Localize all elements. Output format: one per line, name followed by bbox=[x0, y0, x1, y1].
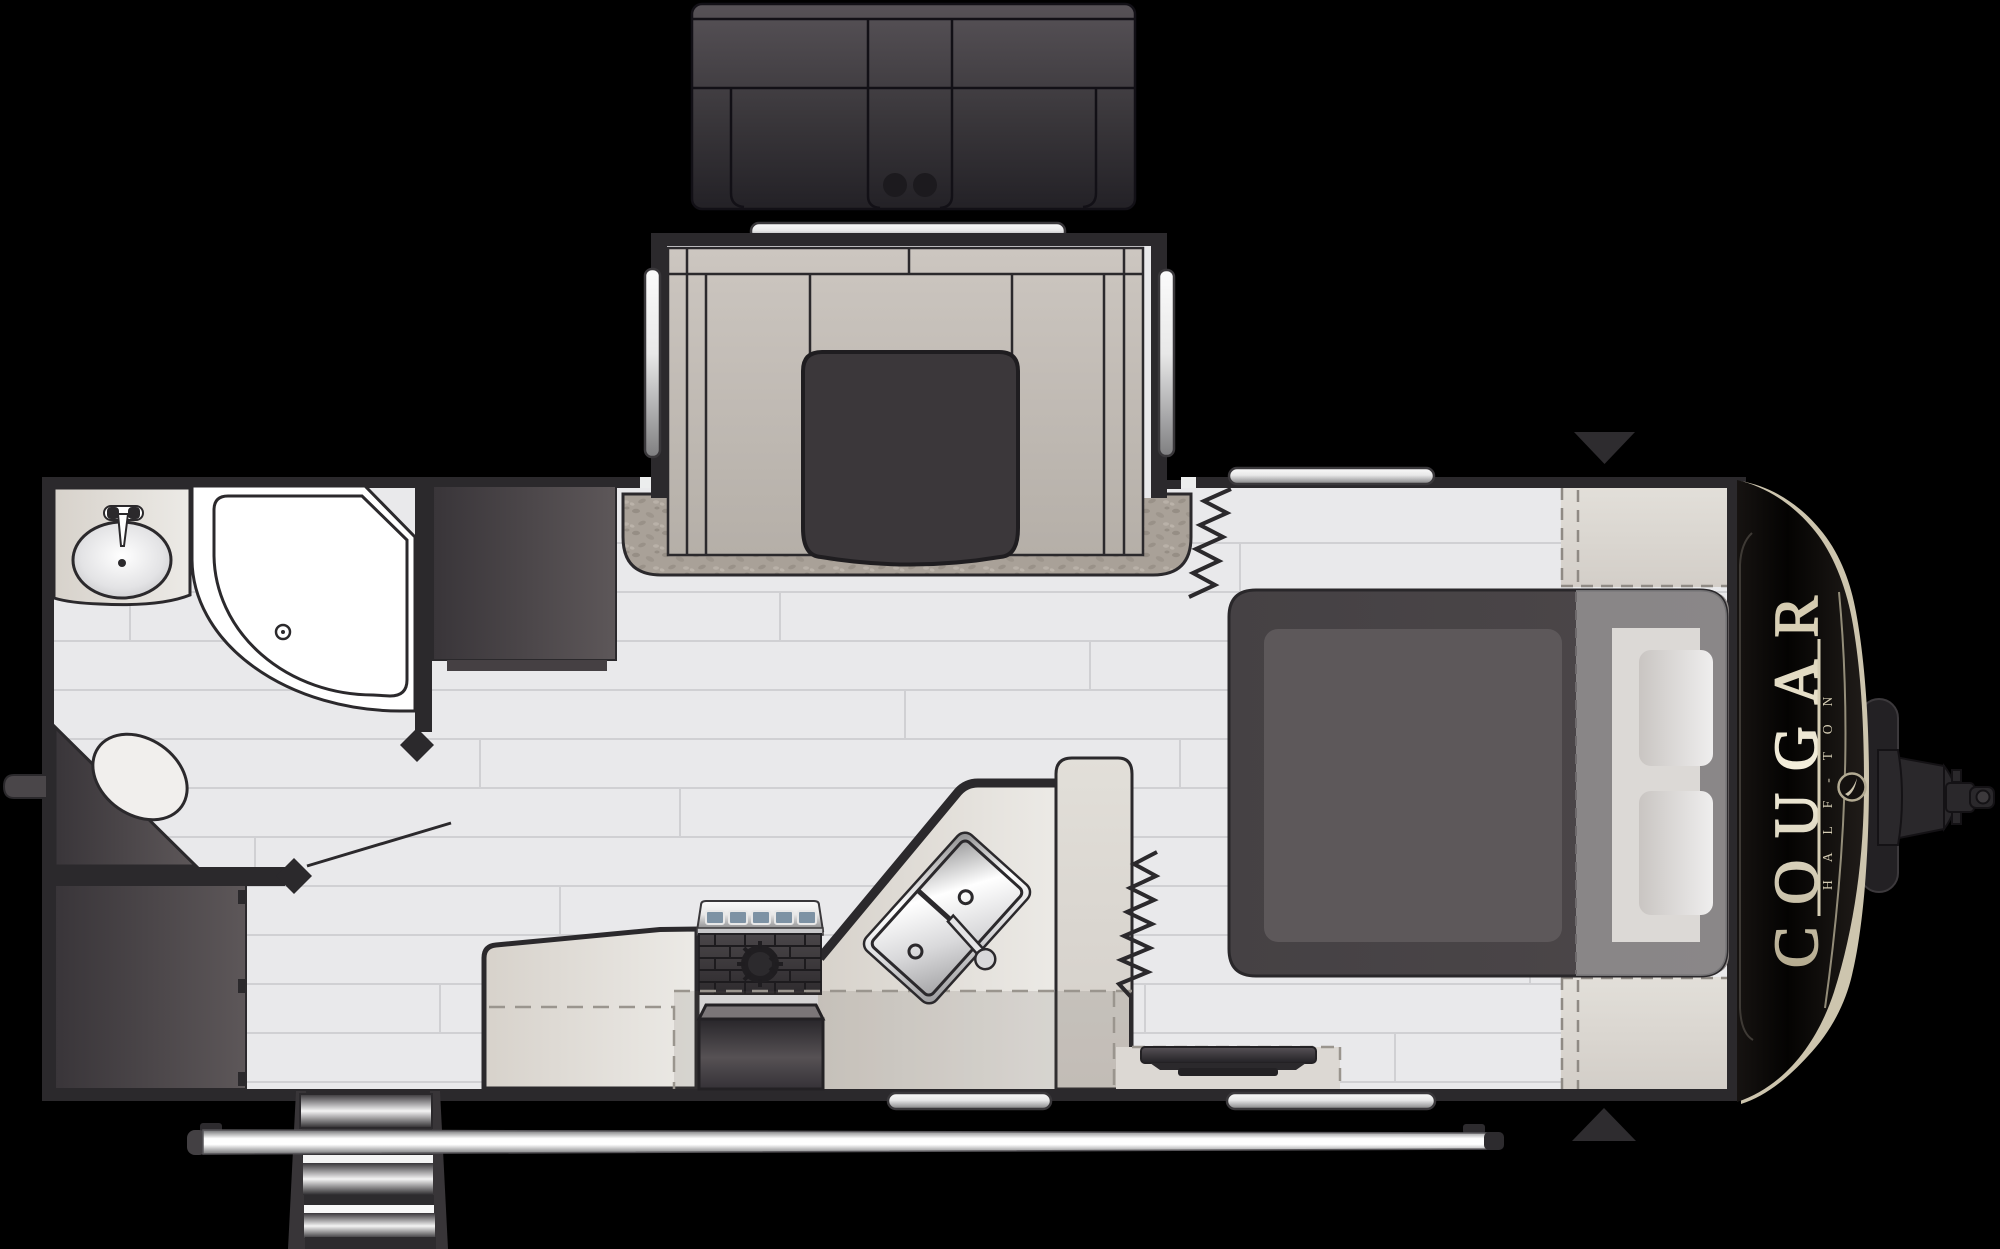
svg-text:HALF-TON: HALF-TON bbox=[1820, 679, 1835, 890]
